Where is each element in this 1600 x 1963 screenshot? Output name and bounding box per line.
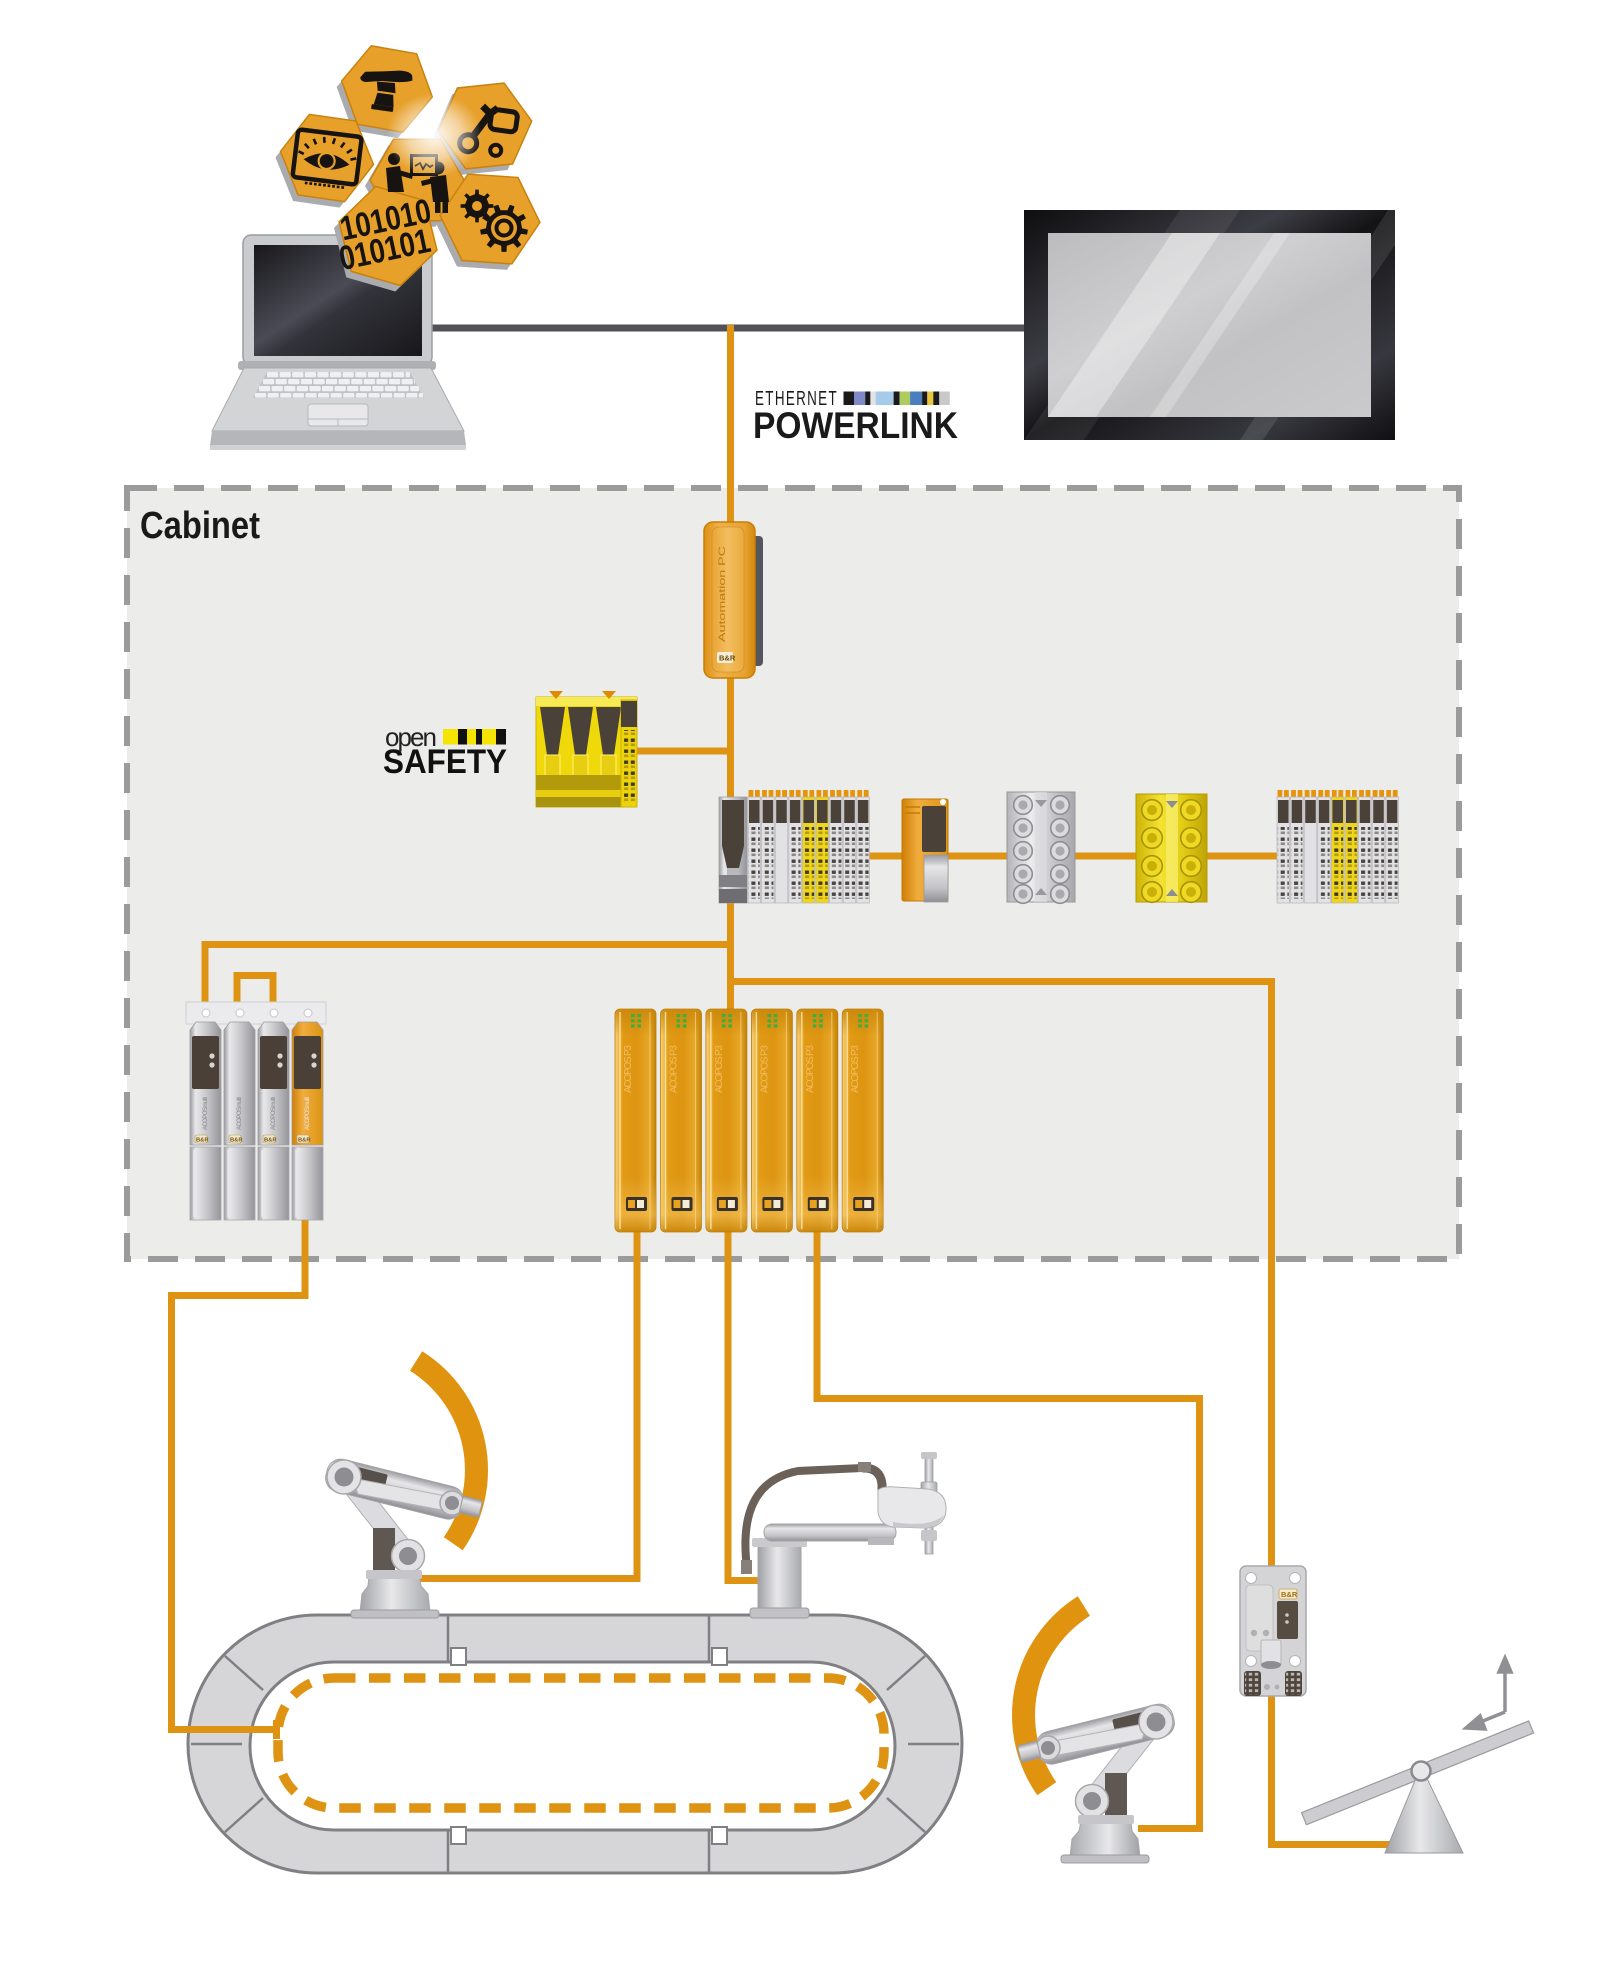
svg-text:SAFETY: SAFETY — [383, 743, 507, 781]
svg-text:ACOPOS P3: ACOPOS P3 — [623, 1045, 634, 1093]
svg-text:ACOPOS P3: ACOPOS P3 — [714, 1045, 725, 1093]
svg-text:ACOPOS P3: ACOPOS P3 — [759, 1045, 770, 1093]
svg-text:ACOPOS P3: ACOPOS P3 — [669, 1045, 680, 1093]
svg-text:B&R: B&R — [1281, 1590, 1298, 1599]
svg-text:ACOPOSmulti: ACOPOSmulti — [271, 1097, 277, 1130]
svg-text:ACOPOSmulti: ACOPOSmulti — [203, 1097, 209, 1130]
svg-text:B&R: B&R — [298, 1138, 311, 1144]
svg-text:Cabinet: Cabinet — [140, 505, 260, 547]
svg-text:B&R: B&R — [719, 654, 736, 663]
svg-text:B&R: B&R — [264, 1138, 277, 1144]
svg-text:B&R: B&R — [196, 1138, 209, 1144]
svg-text:Automation PC: Automation PC — [717, 545, 727, 642]
svg-text:POWERLINK: POWERLINK — [753, 405, 958, 446]
svg-text:ACOPOSmulti: ACOPOSmulti — [305, 1097, 311, 1130]
svg-text:B&R: B&R — [230, 1138, 243, 1144]
svg-text:ACOPOS P3: ACOPOS P3 — [805, 1045, 816, 1093]
svg-text:ACOPOS P3: ACOPOS P3 — [850, 1045, 861, 1093]
svg-text:ACOPOSmulti: ACOPOSmulti — [237, 1097, 243, 1130]
